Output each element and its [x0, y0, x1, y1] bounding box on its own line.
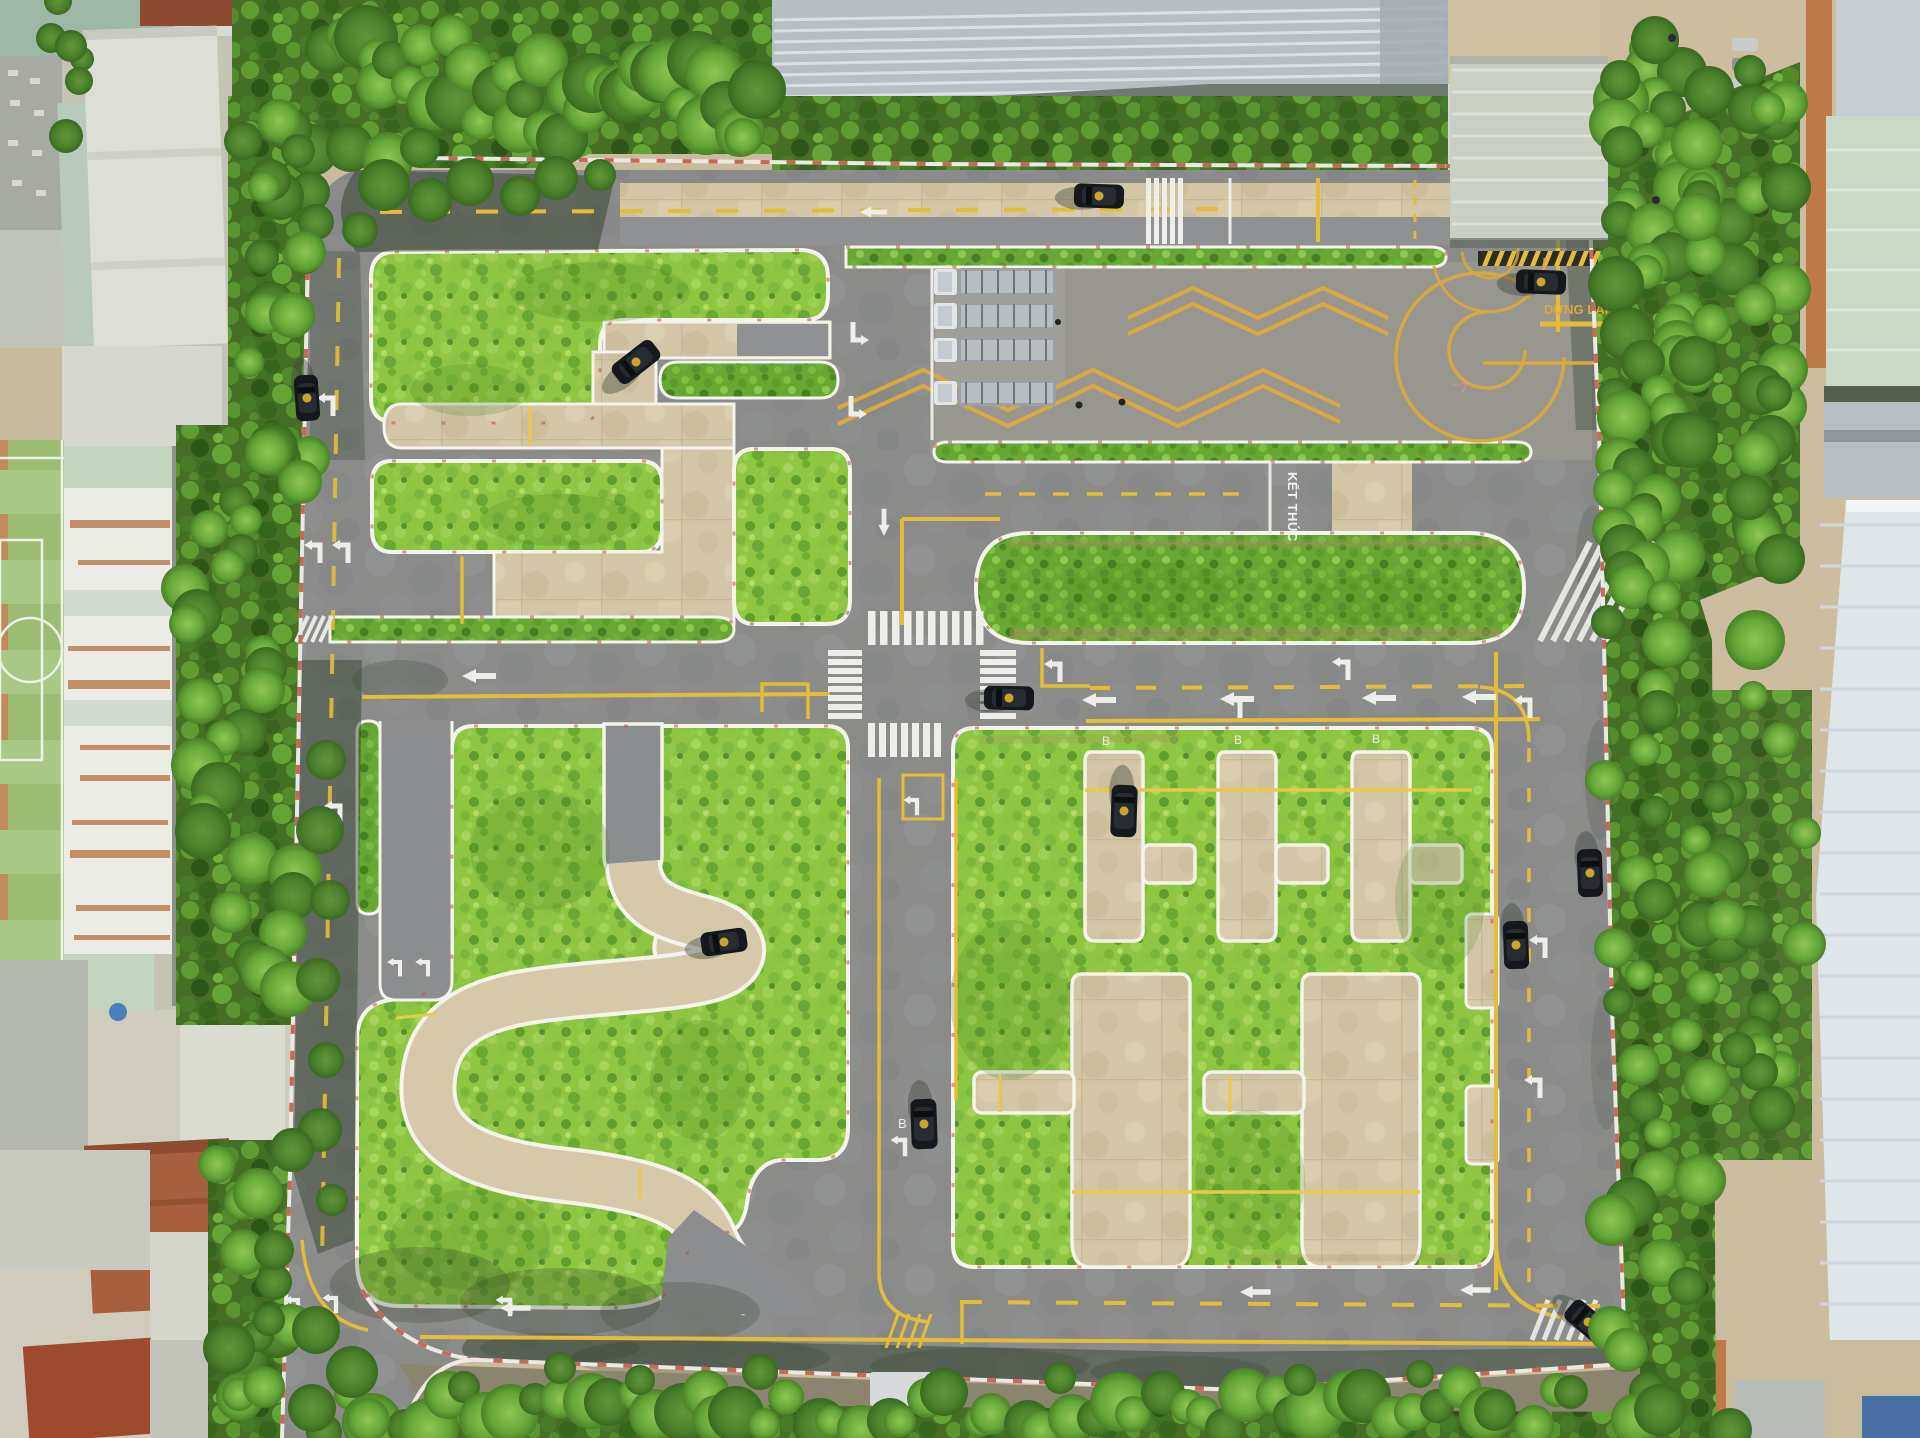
svg-text:B: B [1102, 734, 1110, 748]
svg-text:KẾT THÚC: KẾT THÚC [1285, 472, 1300, 542]
svg-text:B: B [1234, 733, 1242, 747]
svg-text:B: B [1372, 732, 1380, 746]
svg-text:B: B [898, 1116, 907, 1131]
